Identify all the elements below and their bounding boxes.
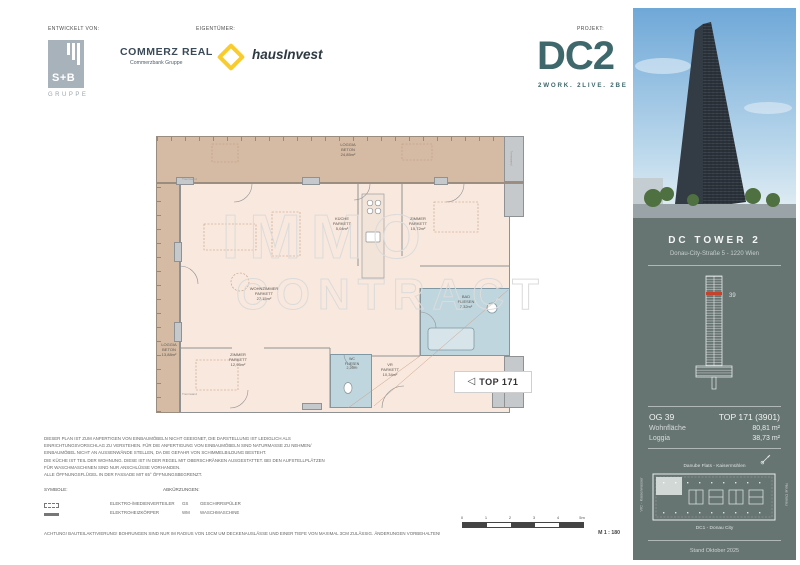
scale-tick: 2 bbox=[509, 515, 511, 520]
scale-segment bbox=[463, 523, 487, 527]
floor-plan: IMMO CONTRACT LOGGIA BETON 24,85m² LOGGI… bbox=[152, 116, 534, 418]
area-label: Wohnfläche bbox=[649, 425, 686, 432]
commerz-real-logo-text: COMMERZ REAL bbox=[120, 46, 213, 58]
plan-date: Stand Oktober 2025 bbox=[633, 548, 796, 554]
note-line: ALLE ÖFFNUNGSFLÜGEL IN DER FASSADE MIT 6… bbox=[44, 471, 325, 478]
room-area: 12,95m² bbox=[229, 362, 247, 367]
trennwand-label: Trennwand bbox=[182, 392, 197, 396]
scale-tick: 4 bbox=[557, 515, 559, 520]
unit-marker: ◁ TOP 171 bbox=[454, 371, 532, 393]
building-elevation-diagram: 39 bbox=[679, 271, 749, 399]
unit-marker-label: TOP 171 bbox=[479, 377, 518, 387]
room-area: 5,04m² bbox=[333, 226, 351, 231]
floor-39-label: 39 bbox=[729, 293, 736, 299]
abbreviations-heading: ABKÜRZUNGEN: bbox=[163, 487, 200, 492]
room-label-bad: BAD FLIESEN 7,32m² bbox=[458, 294, 475, 310]
room-area: 2,29m² bbox=[345, 366, 360, 371]
abbreviation-label: GESCHIRRSPÜLER bbox=[200, 501, 241, 506]
room-area: 24,85m² bbox=[340, 152, 355, 157]
project-sidebar: DC TOWER 2 Donau-City-Straße 5 - 1220 Wi… bbox=[633, 8, 796, 560]
scale-segment bbox=[487, 523, 511, 527]
symbol-label: ELEKTRO-/MEDIENVERTEILER bbox=[110, 501, 175, 506]
owner-label: EIGENTÜMER: bbox=[196, 26, 235, 32]
scale-tick: 3 bbox=[533, 515, 535, 520]
commerzbank-ring-icon bbox=[217, 43, 245, 71]
trennwand-label: Trennwand bbox=[509, 151, 513, 166]
siteplan-label-north: Danube Flats - Kaisermühlen bbox=[633, 464, 796, 469]
floor-unit-row: OG 39 TOP 171 (3901) bbox=[649, 412, 780, 422]
divider bbox=[648, 540, 781, 541]
note-line: EINBAUMÖBEL NICHT AN AUSSENWÄNDE STELLEN… bbox=[44, 449, 325, 456]
dc2-tagline: 2WORK. 2LIVE. 2BE bbox=[538, 82, 628, 89]
dc2-logo: DC2 bbox=[537, 36, 614, 76]
abbreviation-key: GS bbox=[182, 501, 188, 506]
symbol-label: ELEKTROHEIZKÖRPER bbox=[110, 510, 159, 515]
electric-radiator-symbol bbox=[44, 513, 59, 516]
trennwand-label: Trennwand bbox=[182, 177, 197, 181]
room-label-zimmer-2: ZIMMER PARKETT 12,95m² bbox=[229, 352, 247, 368]
area-label: Loggia bbox=[649, 435, 670, 442]
commerzbank-gruppe-subtitle: Commerzbank Gruppe bbox=[130, 60, 182, 66]
abbreviation-key: WM bbox=[182, 510, 190, 515]
building-address: Donau-City-Straße 5 - 1220 Wien bbox=[633, 251, 796, 257]
room-label-loggia-left: LOGGIA BETON 13,88m² bbox=[161, 342, 176, 358]
siteplan-diagram bbox=[641, 472, 787, 524]
sb-logo-bar bbox=[67, 43, 70, 55]
scale-segment bbox=[535, 523, 559, 527]
scale-segments bbox=[462, 522, 584, 528]
siteplan-label-south: DC1 - Donau City bbox=[633, 526, 796, 531]
room-area: 7,32m² bbox=[458, 304, 475, 309]
room-area: 10,34m² bbox=[381, 372, 399, 377]
scale-ratio-label: M 1 : 180 bbox=[560, 530, 620, 536]
divider bbox=[648, 265, 781, 266]
scale-segment bbox=[559, 523, 583, 527]
sb-logo-bar bbox=[77, 43, 80, 65]
siteplan-label-west: VIC - Kaiserwasser bbox=[639, 465, 644, 525]
floor-39-highlight bbox=[706, 292, 722, 295]
room-label-vr: VR PARKETT 10,34m² bbox=[381, 362, 399, 378]
note-line: DIESER PLAN IST ZUM ANFERTIGEN VON EINBA… bbox=[44, 435, 325, 442]
scale-segment bbox=[511, 523, 535, 527]
area-value: 80,81 m² bbox=[752, 425, 780, 432]
room-area: 15,72m² bbox=[409, 226, 427, 231]
developed-by-label: ENTWICKELT VON: bbox=[48, 26, 99, 32]
project-label: PROJEKT: bbox=[577, 26, 604, 32]
watermark-contract: CONTRACT bbox=[236, 270, 547, 320]
floor-label: OG 39 bbox=[649, 412, 674, 422]
highlighted-building-footprint bbox=[656, 477, 682, 495]
note-line: DIE KÜCHE IST TEIL DER WOHNUNG. DIESE IS… bbox=[44, 457, 325, 464]
scale-tick: 1 bbox=[485, 515, 487, 520]
sb-gruppe-subtitle: GRUPPE bbox=[48, 92, 88, 98]
room-area: 27,15m² bbox=[250, 296, 278, 301]
room-label-loggia-top: LOGGIA BETON 24,85m² bbox=[340, 142, 355, 158]
electro-media-distributor-symbol bbox=[44, 503, 59, 508]
sb-gruppe-logo: S+B bbox=[48, 40, 84, 88]
room-area: 13,88m² bbox=[161, 352, 176, 357]
sb-logo-text: S+B bbox=[52, 72, 75, 84]
room-label-kueche: KÜCHE PARKETT 5,04m² bbox=[333, 216, 351, 232]
hausinvest-logo-text: hausInvest bbox=[252, 47, 323, 62]
plan-notes: DIESER PLAN IST ZUM ANFERTIGEN VON EINBA… bbox=[44, 435, 325, 478]
note-line: EINRICHTUNGSVORSCHLAG ZU VERSTEHEN. FÜR … bbox=[44, 442, 325, 449]
watermark-immo: IMMO bbox=[222, 202, 431, 273]
room-label-zimmer-1: ZIMMER PARKETT 15,72m² bbox=[409, 216, 427, 232]
tower-photo bbox=[633, 8, 796, 218]
scale-tick: 5m bbox=[579, 515, 585, 520]
room-label-wc: WC FLIESEN 2,29m² bbox=[345, 357, 360, 371]
note-line: FÜR WASCHMASCHINEN SIND NUR ANSCHLÜSSE V… bbox=[44, 464, 325, 471]
sb-logo-bar bbox=[72, 43, 75, 60]
plan-sheet: ENTWICKELT VON: EIGENTÜMER: PROJEKT: S+B… bbox=[0, 0, 800, 565]
building-name: DC TOWER 2 bbox=[633, 235, 796, 246]
unit-label: TOP 171 (3901) bbox=[719, 412, 780, 422]
symbols-heading: SYMBOLE: bbox=[44, 487, 68, 492]
divider bbox=[648, 448, 781, 449]
warning-line: ACHTUNG! BAUTEILAKTIVIERUNG! BOHRUNGEN S… bbox=[44, 531, 440, 536]
area-row: Wohnfläche 80,81 m² bbox=[649, 425, 780, 432]
left-triangle-icon: ◁ bbox=[468, 377, 476, 387]
siteplan-label-east: Neue Donau bbox=[785, 465, 790, 525]
abbreviation-label: WASCHMASCHINE bbox=[200, 510, 239, 515]
area-row: Loggia 38,73 m² bbox=[649, 435, 780, 442]
area-value: 38,73 m² bbox=[752, 435, 780, 442]
divider bbox=[648, 406, 781, 407]
scale-tick: 0 bbox=[461, 515, 463, 520]
room-label-wohnzimmer: WOHNZIMMER PARKETT 27,15m² bbox=[250, 286, 278, 302]
